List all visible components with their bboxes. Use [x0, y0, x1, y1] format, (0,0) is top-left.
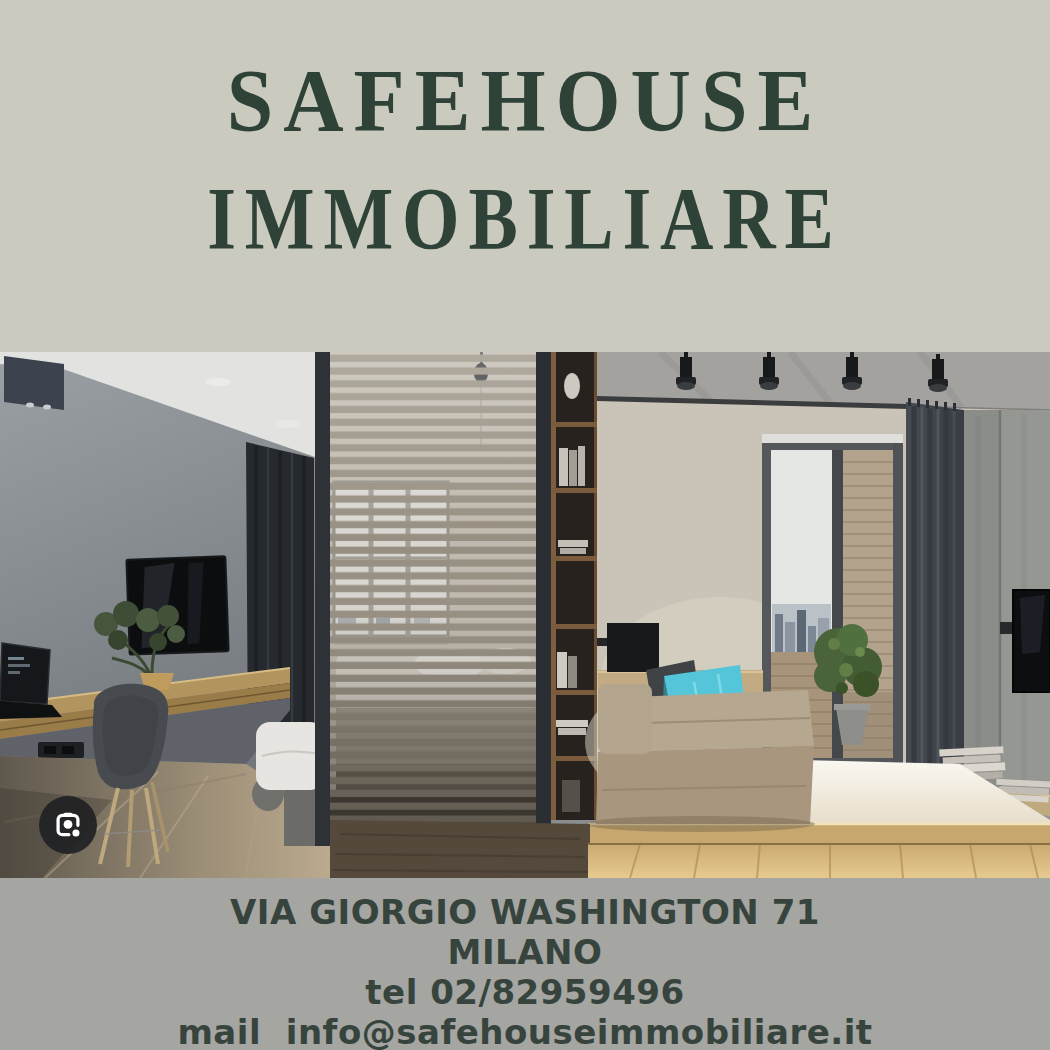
address-line: VIA GIORGIO WASHINGTON 71 [0, 892, 1050, 932]
brand-title-line1: SAFEHOUSE [26, 42, 1024, 160]
email-line: mail info@safehouseimmobiliare.it [0, 1012, 1050, 1050]
google-lens-camera-icon [51, 808, 85, 842]
apartment-photo [0, 352, 1050, 878]
air-conditioner [4, 356, 64, 410]
curtain-right [904, 398, 964, 791]
header-banner: SAFEHOUSE IMMOBILIARE [0, 0, 1050, 352]
brand-title-line2: IMMOBILIARE [84, 160, 966, 278]
apartment-photo-scene [0, 352, 1050, 878]
city-line: MILANO [0, 932, 1050, 972]
left-bedroom-area [0, 352, 336, 878]
google-lens-button[interactable] [39, 796, 97, 854]
real-estate-flyer: SAFEHOUSE IMMOBILIARE [0, 0, 1050, 1050]
daybed-cushions [585, 684, 815, 832]
slatted-partition [315, 352, 551, 846]
contact-banner: VIA GIORGIO WASHINGTON 71 MILANO tel 02/… [0, 878, 1050, 1050]
phone-line: tel 02/82959496 [0, 972, 1050, 1012]
wall-outlets [38, 742, 84, 758]
